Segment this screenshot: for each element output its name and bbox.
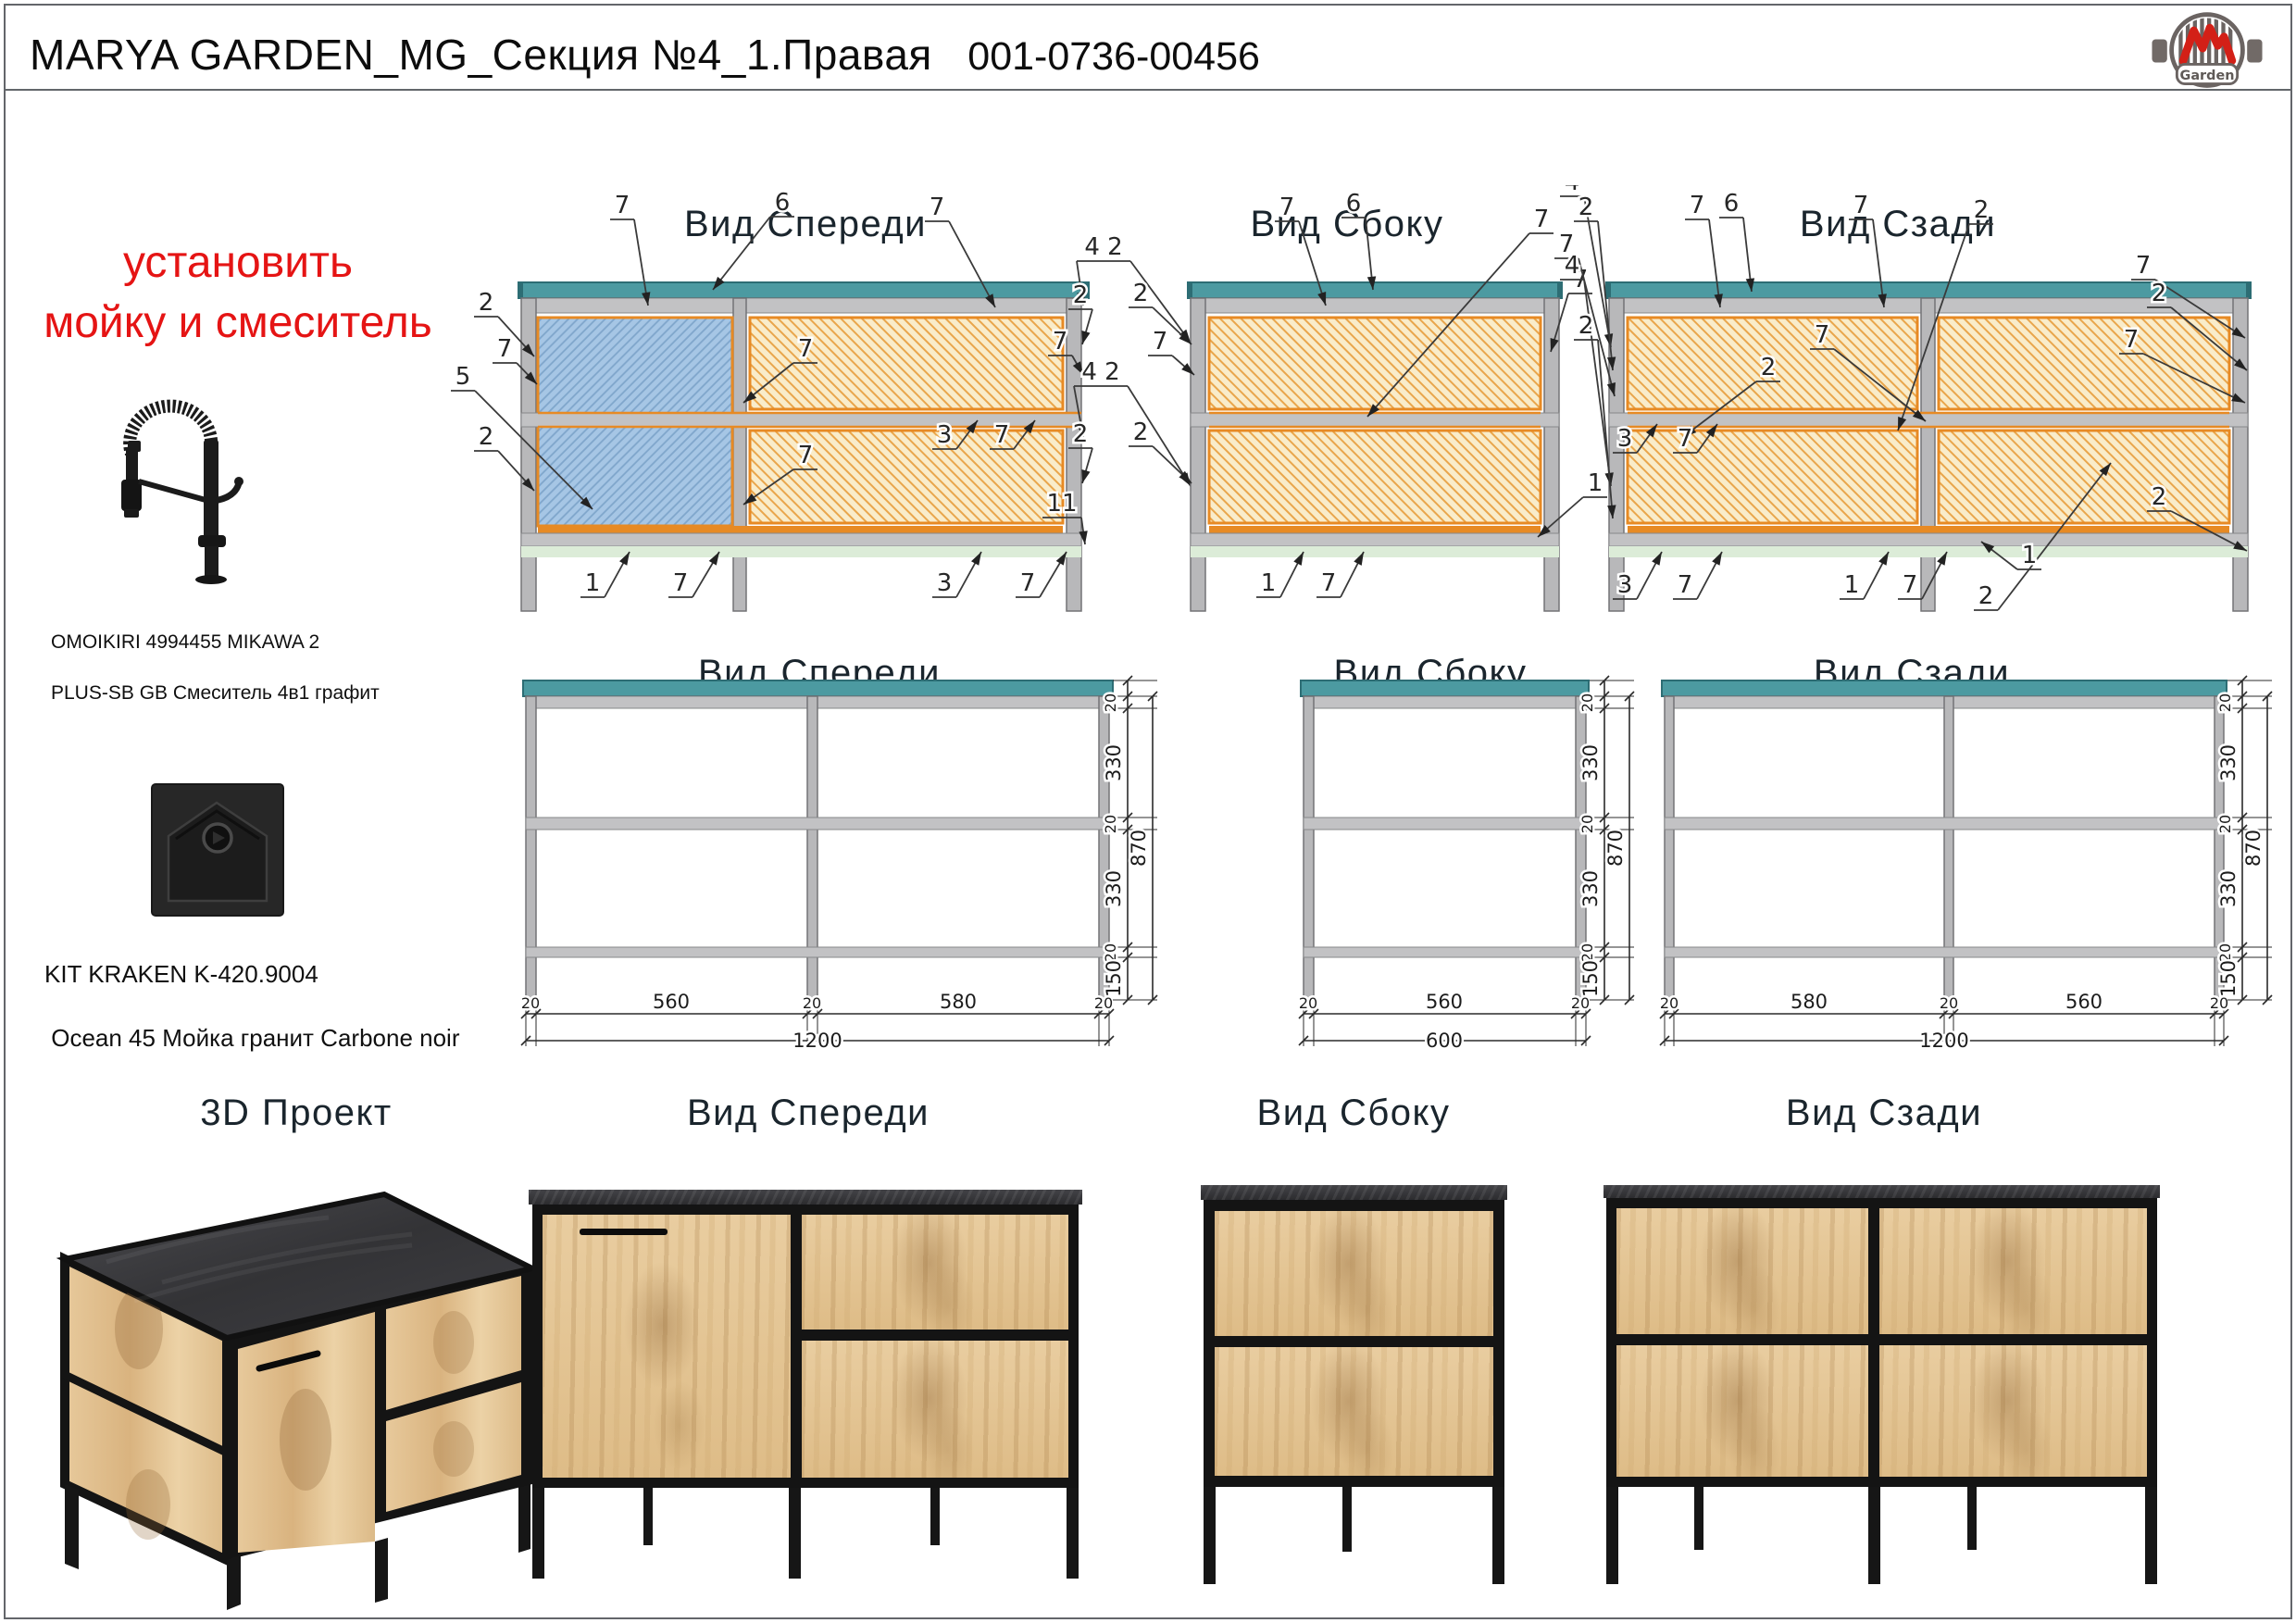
mid-side-view: 20 560 20 600 20 330 20 330 20 150 870 xyxy=(1287,639,1657,1083)
leg-rear xyxy=(643,1488,653,1545)
leg xyxy=(789,1488,801,1579)
countertop xyxy=(518,282,1089,298)
faucet-image xyxy=(83,389,268,611)
page-title: MARYA GARDEN_MG_Секция №4_1.Правая xyxy=(30,30,932,80)
callout-label: 7 xyxy=(2124,326,2140,354)
back-upper-right-panel xyxy=(1879,1208,2147,1334)
callout-label: 11 xyxy=(1046,490,1077,518)
callout-label: 7 xyxy=(1678,571,1693,599)
dim-total-height: 870 xyxy=(1604,830,1627,867)
dim-total-depth: 600 xyxy=(1426,1030,1463,1052)
bottom-front-label: Вид Спереди xyxy=(687,1092,930,1134)
leg-3d xyxy=(227,1554,241,1610)
callout-label: 7 xyxy=(1279,194,1295,221)
side-upper-panel xyxy=(1215,1211,1493,1336)
callout-label: 7 xyxy=(2136,252,2152,280)
callout-label: 6 xyxy=(1346,190,1362,218)
callout-label: 1 xyxy=(1844,571,1860,599)
logo-brand-text: Garden xyxy=(2180,69,2235,83)
dim: 20 xyxy=(1660,994,1678,1012)
side-frame xyxy=(1204,1200,1504,1487)
bottom-shelf xyxy=(1665,947,2224,957)
dim: 20 xyxy=(1299,994,1317,1012)
document-code: 001-0736-00456 xyxy=(967,34,1260,80)
faucet-caption-line1: OMOIKIRI 4994455 MIKAWA 2 xyxy=(51,631,319,653)
callout-label: 2 xyxy=(1974,196,1990,224)
callout-label: 7 xyxy=(994,421,1010,449)
callout-label: 2 xyxy=(2152,483,2167,511)
sink-caption-line2: Ocean 45 Мойка гранит Carbone noir xyxy=(44,1024,460,1052)
note-line2: мойку и смеситель xyxy=(44,298,432,347)
callout-label: 1 xyxy=(585,569,601,597)
dim: 20 xyxy=(1578,943,1596,962)
dim: 20 xyxy=(1940,994,1958,1012)
leg xyxy=(1868,1487,1880,1584)
dim-total-width: 1200 xyxy=(1919,1030,1968,1052)
callout-label: 6 xyxy=(775,189,791,217)
faucet-caption: OMOIKIRI 4994455 MIKAWA 2 PLUS-SB GB Сме… xyxy=(51,630,380,706)
back-frame xyxy=(1606,1198,2157,1487)
callout-label: 2 xyxy=(1761,354,1777,381)
dim: 20 xyxy=(1102,693,1119,712)
callout-label: 7 xyxy=(1321,569,1337,597)
callout-label: 3 xyxy=(937,421,953,449)
lower-drawer-panel xyxy=(750,431,1063,523)
leg-rear xyxy=(930,1488,940,1545)
back-lower-left-panel xyxy=(1628,431,1917,523)
callout-label: 2 xyxy=(1073,281,1089,309)
leg-3d xyxy=(375,1538,388,1603)
mid-side-drawing: 20 560 20 600 20 330 20 330 20 150 870 xyxy=(1287,639,1657,1083)
lower-drawer xyxy=(802,1341,1068,1478)
dim: 150 xyxy=(1579,960,1602,997)
dim: 20 xyxy=(1102,815,1119,833)
callout-label: 2 xyxy=(479,423,494,451)
callout-label: 7 xyxy=(497,335,513,363)
callout-label: 7 xyxy=(1903,571,1918,599)
leg-rear xyxy=(1967,1487,1977,1550)
callout-label: 7 xyxy=(1815,321,1830,349)
callout-label: 7 xyxy=(1853,192,1869,219)
header: MARYA GARDEN_MG_Секция №4_1.Правая 001-0… xyxy=(6,6,2290,91)
dark-countertop xyxy=(1201,1185,1507,1200)
install-note: установить мойку и смеситель xyxy=(11,233,465,354)
callout-label: 1 xyxy=(2022,542,2038,569)
upper-drawer xyxy=(802,1215,1068,1330)
dim: 150 xyxy=(1103,960,1125,997)
note-line1: установить xyxy=(123,238,353,287)
mid-shelf xyxy=(1665,818,2224,830)
door-handle xyxy=(580,1229,668,1235)
countertop xyxy=(1662,680,2227,696)
callout-label: 7 xyxy=(930,194,945,221)
dark-countertop xyxy=(529,1190,1082,1205)
callout-label: 4 xyxy=(1565,252,1580,280)
callout-label: 7 xyxy=(798,335,814,363)
callout-label: 5 xyxy=(455,363,471,391)
top-back-drawing: 42742767272727237371721 xyxy=(1463,185,2296,630)
dim: 330 xyxy=(1579,744,1602,781)
countertop xyxy=(523,680,1113,696)
back-upper-left-panel xyxy=(1616,1208,1868,1334)
countertop xyxy=(1301,680,1589,696)
callout-label: 7 xyxy=(673,569,689,597)
dim: 330 xyxy=(2217,870,2240,907)
callout-label: 2 xyxy=(1978,582,1994,610)
dim: 560 xyxy=(653,991,690,1013)
dim: 20 xyxy=(803,994,821,1012)
leg xyxy=(1067,1488,1079,1579)
dim: 20 xyxy=(2216,943,2234,962)
sink-caption: KIT KRAKEN K-420.9004 Ocean 45 Мойка гра… xyxy=(44,958,460,1054)
callout-label: 3 xyxy=(937,569,953,597)
bottom-shelf xyxy=(1304,947,1586,957)
back-right-leg xyxy=(2233,298,2248,611)
callout-label: 2 xyxy=(1578,312,1594,340)
callout-label: 7 xyxy=(1153,328,1168,356)
brand-logo: Garden xyxy=(2148,7,2266,101)
mid-back-view: 20 580 20 560 20 1200 20 330 20 330 20 1… xyxy=(1648,639,2296,1083)
callout-label: 2 xyxy=(479,289,494,317)
mid-front-view: 20 560 20 580 20 1200 20 330 20 330 20 1… xyxy=(509,639,1213,1083)
back-lower-right-panel xyxy=(1879,1345,2147,1477)
sink-image xyxy=(148,780,287,919)
side-left-leg xyxy=(1191,298,1205,611)
callout-label: 7 xyxy=(1690,192,1705,219)
mid-back-drawing: 20 580 20 560 20 1200 20 330 20 330 20 1… xyxy=(1648,639,2296,1083)
faucet-caption-line2: PLUS-SB GB Смеситель 4в1 графит xyxy=(51,682,380,704)
render-3d xyxy=(51,1143,542,1611)
cabinet-3d-drawing xyxy=(51,1143,542,1611)
grill-logo-icon: Garden xyxy=(2148,7,2266,96)
leg-rear xyxy=(1694,1487,1703,1550)
dim: 580 xyxy=(1791,991,1828,1013)
callout-label: 2 xyxy=(1133,418,1149,446)
top-back-view: 42742767272727237371721 xyxy=(1463,185,2296,630)
leg xyxy=(1606,1487,1618,1584)
front-frame xyxy=(532,1205,1079,1488)
photo-side-view xyxy=(1204,1185,1504,1592)
callout-label: 3 xyxy=(1617,571,1633,599)
bottom-back-label: Вид Сзади xyxy=(1786,1092,1982,1134)
callout-label: 7 xyxy=(615,192,630,219)
dim: 20 xyxy=(1102,943,1119,962)
sink-caption-line1: KIT KRAKEN K-420.9004 xyxy=(44,960,318,988)
dim-total-height: 870 xyxy=(1128,830,1150,867)
leg xyxy=(2145,1487,2157,1584)
faucet-icon xyxy=(83,389,268,611)
callout-label: 2 xyxy=(1073,420,1089,448)
dim-total-height: 870 xyxy=(2242,830,2265,867)
dim: 330 xyxy=(2217,744,2240,781)
front-right-leg xyxy=(1067,298,1081,611)
back-lower-left-panel xyxy=(1616,1345,1868,1477)
leg xyxy=(1204,1487,1216,1584)
dim-total-width: 1200 xyxy=(792,1030,842,1052)
callout-label: 7 xyxy=(1053,328,1068,356)
sink-icon xyxy=(148,780,287,919)
bottom-side-label: Вид Сбоку xyxy=(1257,1092,1451,1134)
bottom-shelf xyxy=(526,947,1109,957)
leg xyxy=(532,1488,544,1579)
callout-label: 6 xyxy=(1724,190,1740,218)
photo-front-view xyxy=(532,1190,1079,1579)
callout-label: 7 xyxy=(798,442,814,469)
photo-back-view xyxy=(1606,1185,2157,1592)
callout-label: 2 xyxy=(1578,194,1594,221)
dim: 330 xyxy=(1103,870,1125,907)
callout-label: 7 xyxy=(1020,569,1036,597)
dim: 20 xyxy=(521,994,540,1012)
dim: 330 xyxy=(1103,744,1125,781)
faucet-spring xyxy=(130,406,211,454)
callout-label: 3 xyxy=(1617,425,1633,453)
bottom-3d-label: 3D Проект xyxy=(200,1092,393,1134)
back-lower-right-panel xyxy=(1939,431,2229,523)
callout-label: 1 xyxy=(1261,569,1277,597)
dim: 20 xyxy=(1578,815,1596,833)
mid-shelf xyxy=(1304,818,1586,830)
leg xyxy=(1492,1487,1504,1584)
dim: 560 xyxy=(2065,991,2103,1013)
dim: 150 xyxy=(2217,960,2240,997)
leg-rear xyxy=(1342,1487,1352,1552)
side-lower-panel xyxy=(1215,1347,1493,1476)
dim: 330 xyxy=(1579,870,1602,907)
title-wrap: MARYA GARDEN_MG_Секция №4_1.Правая 001-0… xyxy=(30,30,1260,80)
dim: 580 xyxy=(940,991,977,1013)
dark-countertop xyxy=(1603,1185,2160,1198)
dim: 20 xyxy=(2216,693,2234,712)
dim: 20 xyxy=(2216,815,2234,833)
mid-front-drawing: 20 560 20 580 20 1200 20 330 20 330 20 1… xyxy=(509,639,1213,1083)
callout-label: 7 xyxy=(1678,425,1693,453)
dim: 560 xyxy=(1426,991,1463,1013)
front-center-leg xyxy=(733,298,746,611)
callout-label: 2 xyxy=(2152,280,2167,307)
back-upper-right-panel xyxy=(1939,318,2229,409)
sink-door xyxy=(543,1215,791,1478)
leg-3d xyxy=(65,1484,79,1569)
mid-shelf xyxy=(526,818,1109,830)
dim: 20 xyxy=(1578,693,1596,712)
callout-label: 2 xyxy=(1133,280,1149,307)
